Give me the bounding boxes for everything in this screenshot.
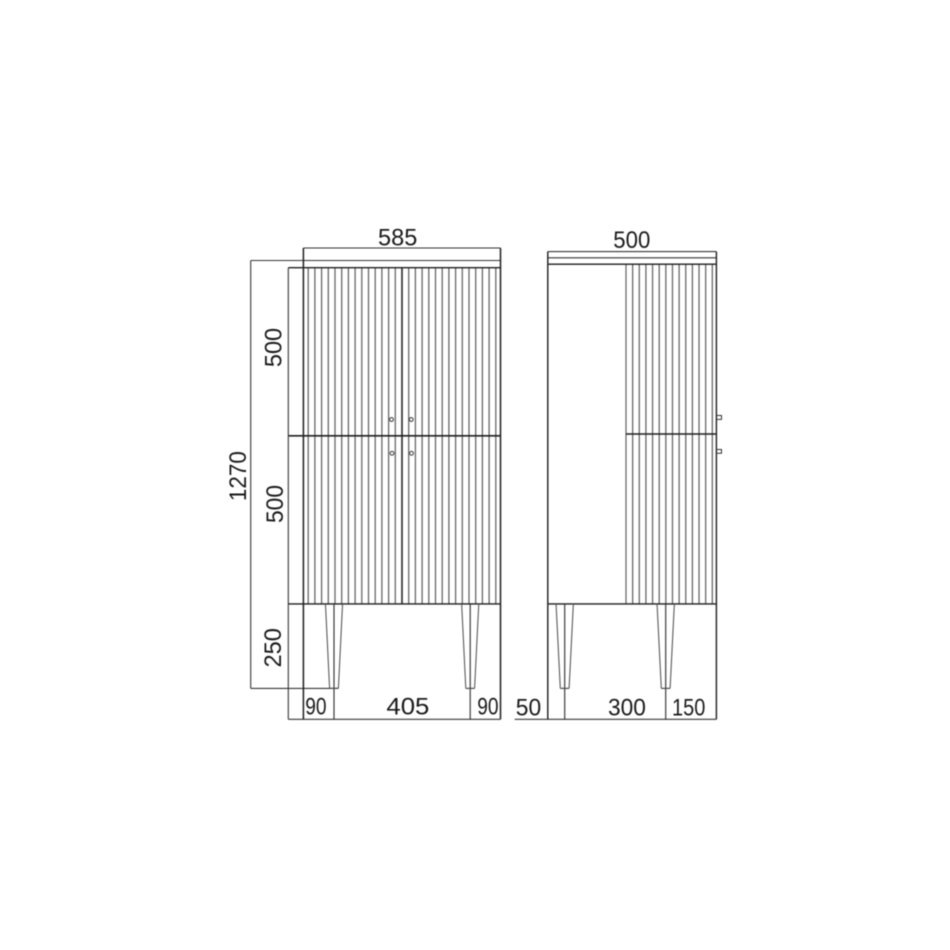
svg-text:1270: 1270 xyxy=(225,451,252,501)
svg-text:250: 250 xyxy=(260,628,287,668)
svg-text:300: 300 xyxy=(608,694,646,721)
svg-text:500: 500 xyxy=(262,485,289,523)
svg-text:585: 585 xyxy=(378,224,417,251)
svg-text:90: 90 xyxy=(305,693,326,720)
svg-text:405: 405 xyxy=(386,693,429,720)
svg-text:50: 50 xyxy=(516,694,541,721)
svg-text:90: 90 xyxy=(477,693,498,720)
svg-text:150: 150 xyxy=(672,694,705,721)
svg-text:500: 500 xyxy=(261,328,288,367)
svg-text:500: 500 xyxy=(613,227,650,254)
